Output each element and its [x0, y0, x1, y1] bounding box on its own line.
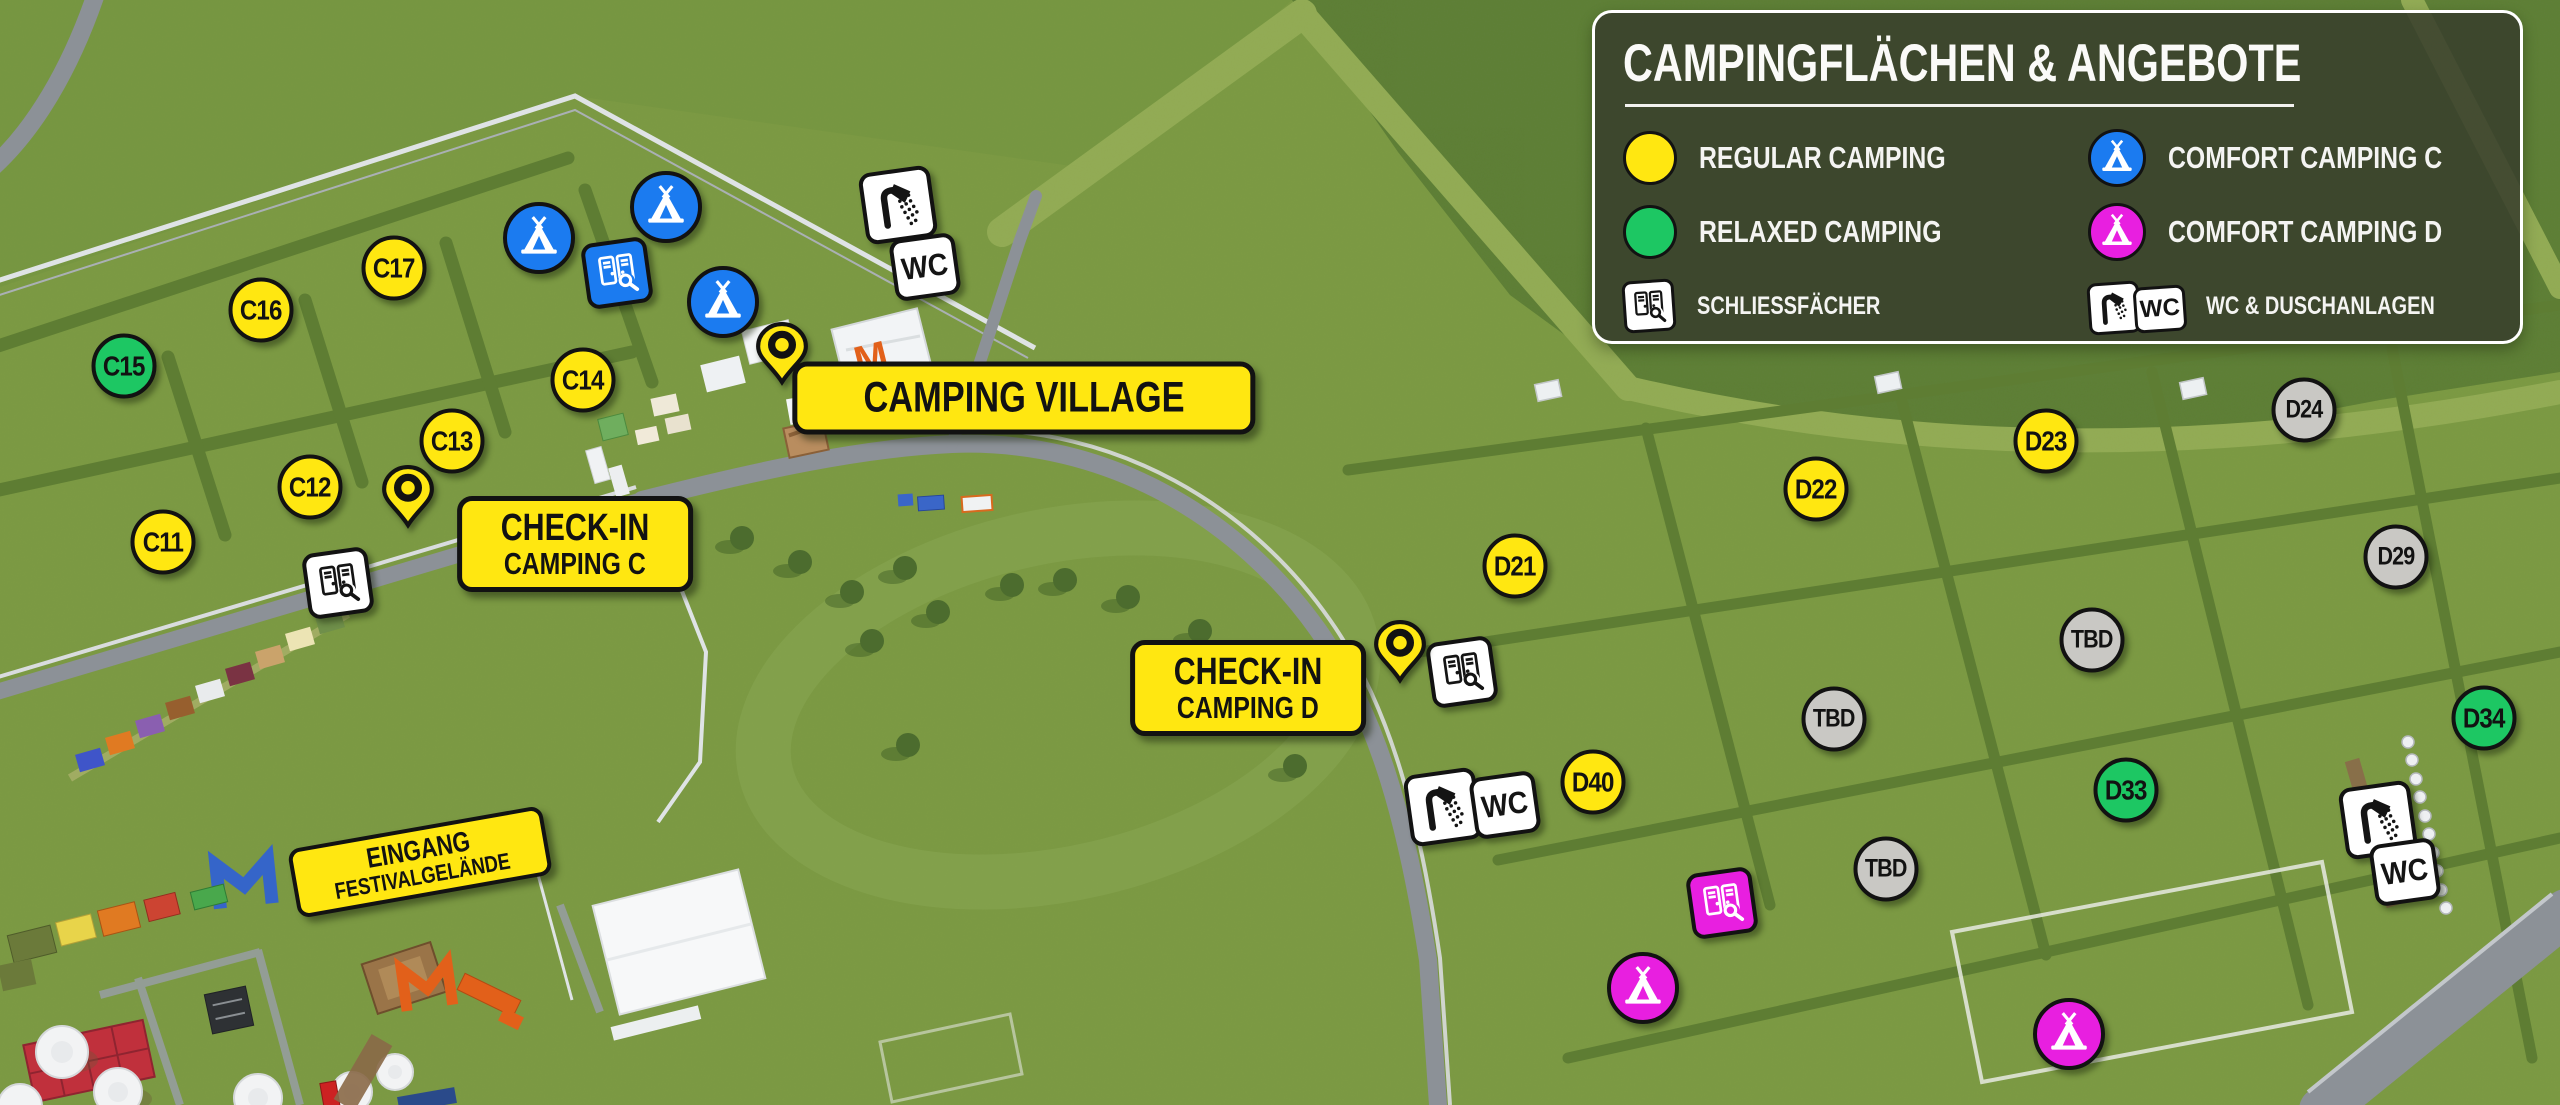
locker-icon — [312, 557, 364, 609]
area-label: TBD — [2071, 626, 2113, 655]
legend-item-wc-showers: WC WC & DUSCHANLAGEN — [2088, 280, 2511, 332]
legend-facility-label: SCHLIESSFÄCHER — [1697, 292, 1880, 321]
tent-glyph — [700, 279, 746, 325]
shower-icon — [869, 176, 928, 235]
area-label: C16 — [240, 294, 282, 326]
area-marker: D29 — [2364, 525, 2429, 590]
locker-sign — [1425, 635, 1500, 710]
comfort-tent-icon — [1607, 952, 1679, 1024]
area-label: D21 — [1494, 550, 1536, 582]
area-label: TBD — [1865, 855, 1907, 884]
area-label: D29 — [2378, 543, 2415, 572]
legend-item-label: COMFORT CAMPING C — [2168, 140, 2442, 176]
legend-item-label: REGULAR CAMPING — [1699, 140, 1946, 176]
area-label: D33 — [2105, 774, 2147, 806]
callout-check-in-c: CHECK-IN CAMPING C — [457, 496, 693, 592]
area-label: D40 — [1572, 766, 1614, 798]
callout-line-2: CAMPING C — [482, 548, 668, 579]
area-label: C11 — [143, 526, 183, 558]
pin-glyph — [1372, 613, 1428, 689]
callout-line-1: CHECK-IN — [482, 509, 668, 547]
legend-grid: REGULAR CAMPING COMFORT CAMPING C RELAXE — [1623, 121, 2492, 343]
tent-glyph — [1620, 965, 1666, 1011]
comfort-tent-icon — [687, 266, 759, 338]
wc-icon: WC — [2132, 284, 2187, 334]
shower-icon — [1414, 778, 1473, 837]
festival-camping-map: M — [0, 0, 2560, 1105]
regular-camping-swatch — [1623, 131, 1677, 185]
comfort-c-tent-icon — [2088, 129, 2146, 187]
legend-divider — [1625, 104, 2294, 107]
relaxed-camping-swatch — [1623, 205, 1677, 259]
comfort-tent-icon — [630, 171, 702, 243]
legend-item-label: RELAXED CAMPING — [1699, 214, 1942, 250]
locker-icon — [591, 247, 643, 299]
area-marker: D22 — [1784, 457, 1849, 522]
area-marker: D24 — [2272, 378, 2337, 443]
legend-title: CAMPINGFLÄCHEN & ANGEBOTE — [1623, 33, 2301, 94]
area-marker: TBD — [1802, 687, 1867, 752]
area-label: C14 — [562, 364, 604, 396]
area-marker: C14 — [551, 348, 616, 413]
area-label: C15 — [103, 350, 145, 382]
area-marker: D21 — [1483, 534, 1548, 599]
area-marker: C11 — [131, 510, 196, 575]
area-label: D34 — [2463, 702, 2505, 734]
locker-icon — [1436, 646, 1488, 698]
wc-sign: WC — [2368, 837, 2442, 908]
wc-sign: WC — [888, 232, 962, 303]
map-pin-icon — [380, 458, 436, 534]
comfort-d-tent-icon — [2088, 203, 2146, 261]
callout-line-1: CHECK-IN — [1155, 653, 1341, 691]
area-label: C17 — [373, 252, 415, 284]
legend-item-lockers: SCHLIESSFÄCHER — [1623, 280, 2088, 332]
area-label: C13 — [431, 425, 473, 457]
wc-sign: WC — [1468, 770, 1542, 841]
area-marker: C12 — [278, 455, 343, 520]
area-marker: C15 — [92, 334, 157, 399]
locker-icon — [1621, 278, 1677, 334]
legend-facility-label: WC & DUSCHANLAGEN — [2206, 292, 2435, 321]
wc-label: WC — [899, 246, 950, 288]
shower-sign — [857, 164, 938, 245]
area-label: D23 — [2025, 425, 2067, 457]
area-marker: D23 — [2014, 409, 2079, 474]
callout-check-in-d: CHECK-IN CAMPING D — [1130, 640, 1366, 736]
tent-glyph — [516, 215, 562, 261]
locker-sign — [1685, 866, 1760, 941]
legend-item-label: COMFORT CAMPING D — [2168, 214, 2442, 250]
pin-glyph — [380, 458, 436, 534]
shower-wc-icon: WC — [2088, 280, 2184, 332]
area-label: C12 — [289, 471, 331, 503]
area-marker: TBD — [1854, 837, 1919, 902]
map-pin-icon — [1372, 613, 1428, 689]
area-label: D24 — [2286, 396, 2323, 425]
callout-line-1: CAMPING VILLAGE — [823, 377, 1224, 420]
area-label: D22 — [1795, 473, 1837, 505]
area-marker: D33 — [2094, 758, 2159, 823]
legend-item-comfort-camping-c: COMFORT CAMPING C — [2088, 129, 2511, 187]
legend-item-regular-camping: REGULAR CAMPING — [1623, 131, 2088, 185]
comfort-tent-icon — [503, 202, 575, 274]
callout-line-2: CAMPING D — [1155, 692, 1341, 723]
locker-sign — [580, 236, 655, 311]
legend-item-relaxed-camping: RELAXED CAMPING — [1623, 205, 2088, 259]
area-marker: D40 — [1561, 750, 1626, 815]
comfort-tent-icon — [2033, 998, 2105, 1070]
area-marker: TBD — [2060, 608, 2125, 673]
wc-label: WC — [2379, 851, 2430, 893]
legend-item-comfort-camping-d: COMFORT CAMPING D — [2088, 203, 2511, 261]
wc-label: WC — [1479, 784, 1530, 826]
locker-sign — [301, 546, 376, 621]
legend-panel: CAMPINGFLÄCHEN & ANGEBOTE REGULAR CAMPIN… — [1592, 10, 2523, 344]
tent-glyph — [643, 184, 689, 230]
area-marker: C16 — [229, 278, 294, 343]
tent-glyph — [2046, 1011, 2092, 1057]
callout-camping-village: CAMPING VILLAGE — [792, 362, 1255, 435]
callout-eingang: EINGANG FESTIVALGELÄNDE — [287, 805, 553, 919]
area-marker: C17 — [362, 236, 427, 301]
locker-icon — [1696, 877, 1748, 929]
area-label: TBD — [1813, 705, 1855, 734]
area-marker: D34 — [2452, 686, 2517, 751]
